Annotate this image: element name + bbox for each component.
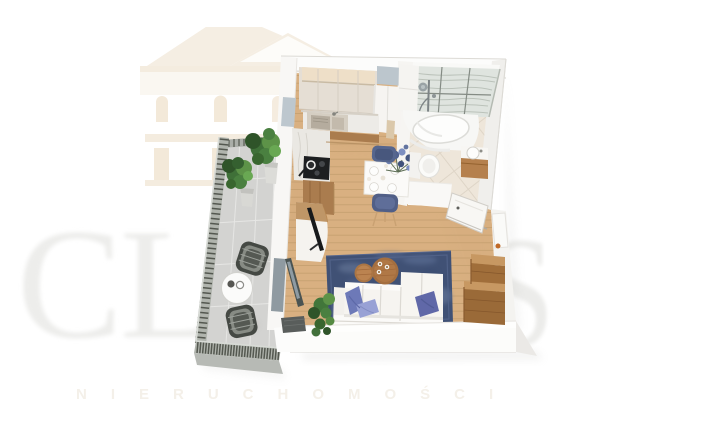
svg-text:C: C	[17, 197, 122, 372]
svg-text:NIERUCHOMOŚCI: NIERUCHOMOŚCI	[76, 385, 517, 403]
